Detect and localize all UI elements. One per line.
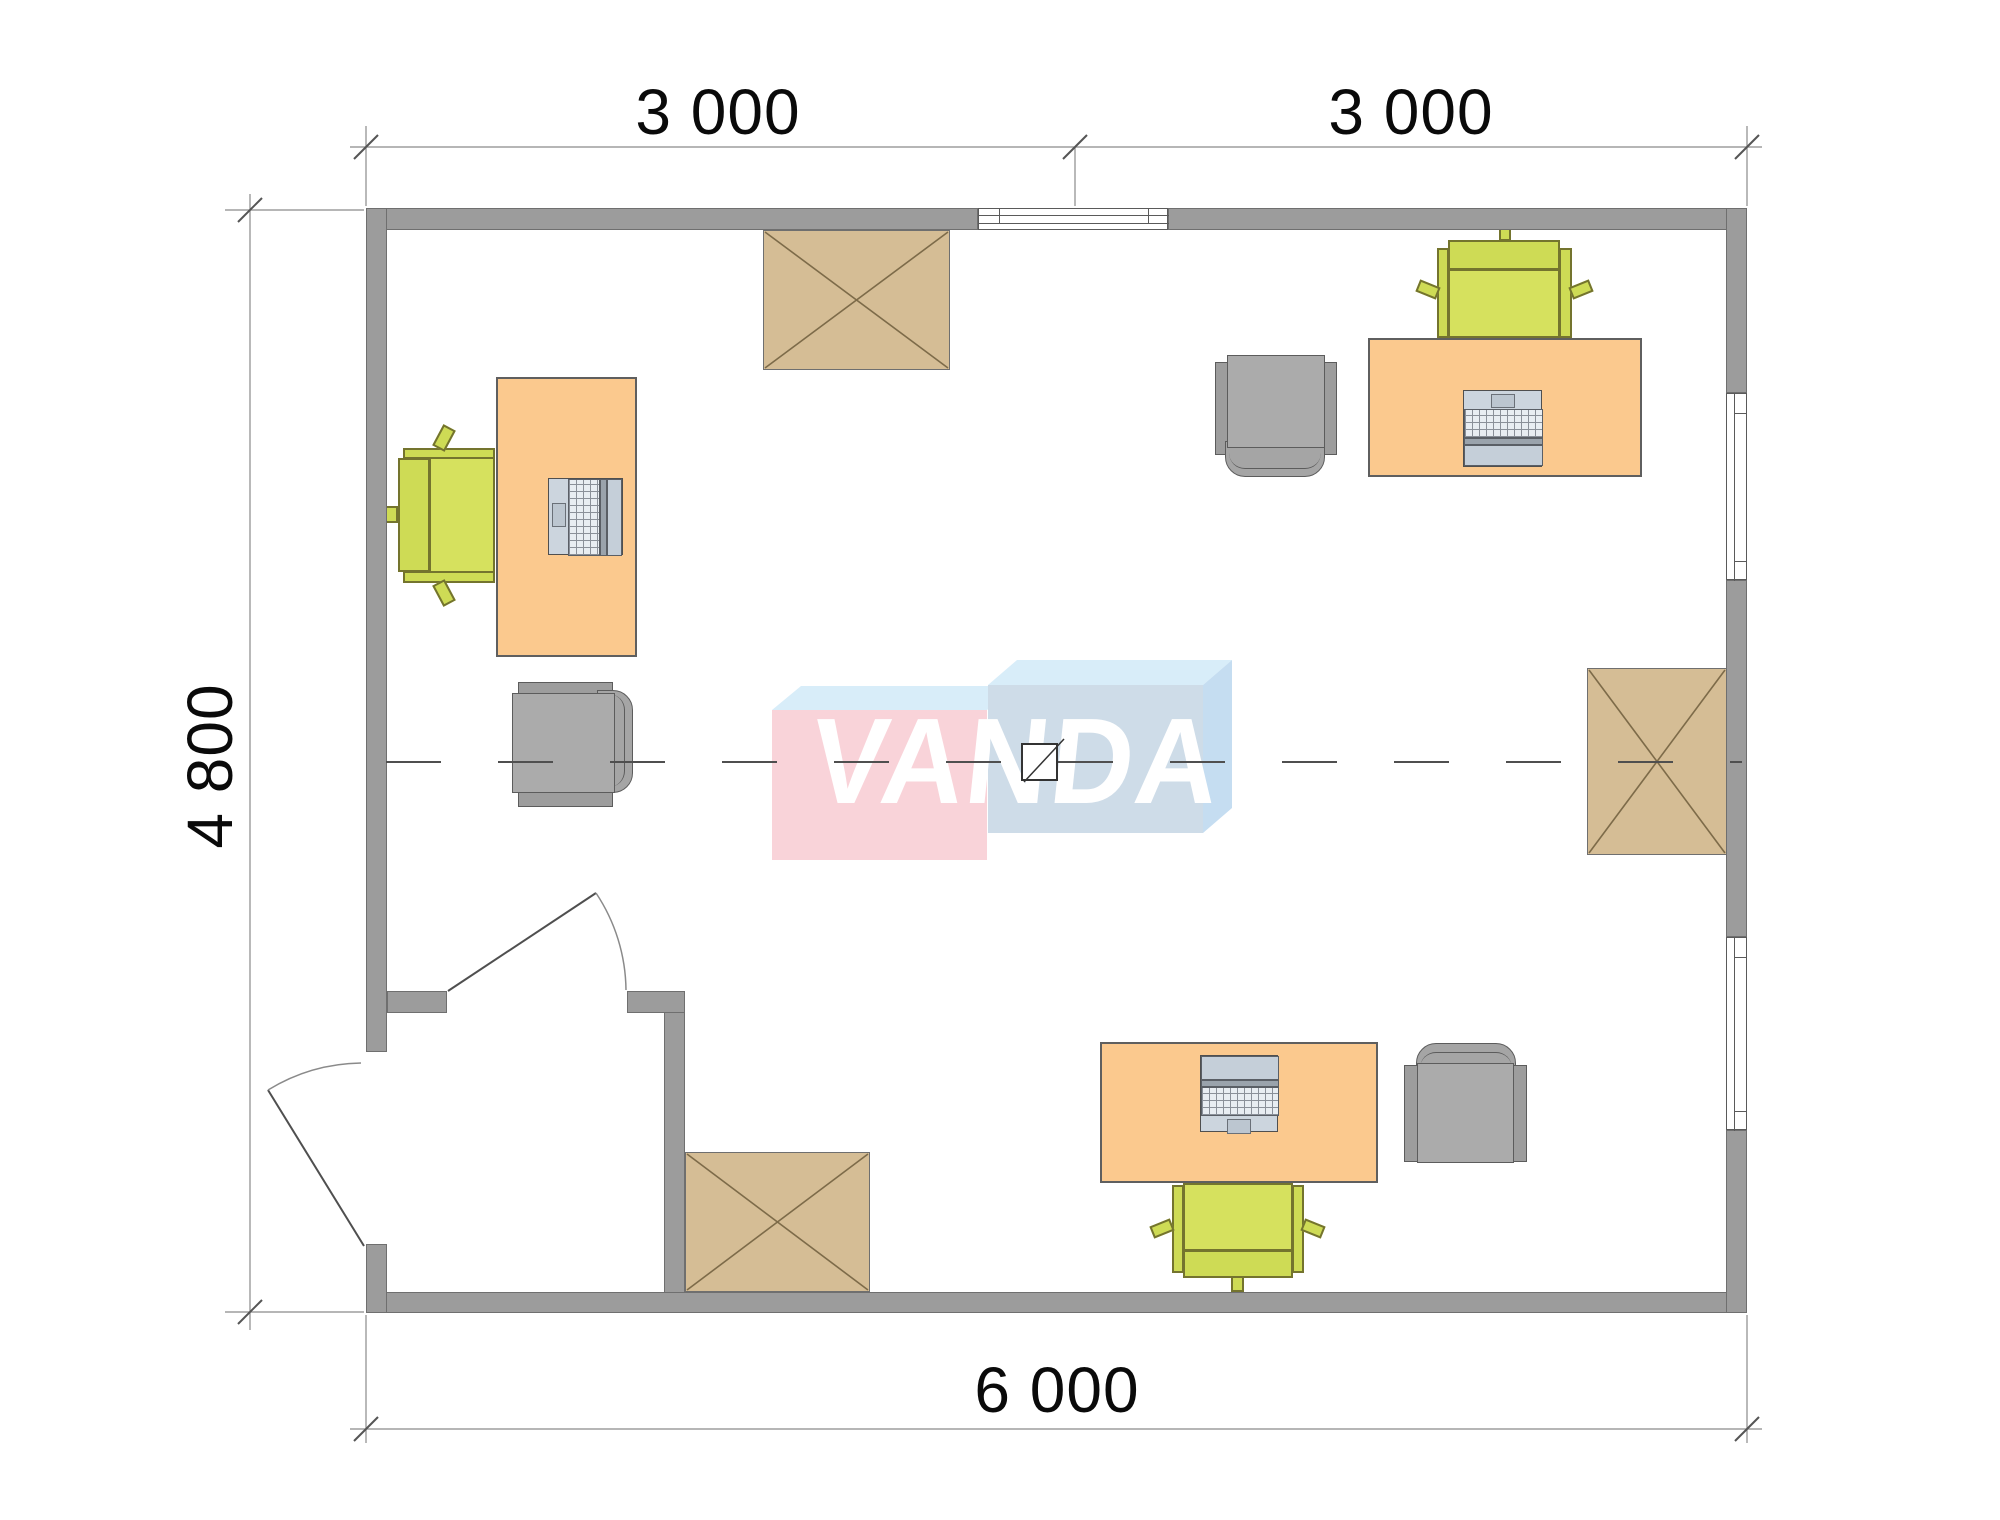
task-chair-2-arm-left: [1437, 248, 1449, 338]
wall-bottom: [366, 1292, 1747, 1313]
task-chair-1-seat: [429, 457, 495, 573]
wall-right-mid-segment: [1726, 580, 1747, 937]
task-chair-1-leg-bottom: [432, 579, 456, 607]
floor-plan-canvas: VANDA: [0, 0, 2000, 1520]
partition-wall-left-stub: [387, 991, 447, 1013]
task-chair-2-seat: [1448, 269, 1560, 338]
task-chair-3-leg-bottom: [1231, 1276, 1244, 1292]
laptop-3: [1200, 1055, 1278, 1132]
armchair-3-seat: [1417, 1063, 1514, 1163]
laptop-1-screen: [607, 479, 622, 556]
laptop-1: [548, 478, 623, 555]
task-chair-2-back: [1448, 240, 1560, 270]
wall-right-top-segment: [1726, 208, 1747, 393]
logo-right-block-top-face: [988, 660, 1232, 685]
task-chair-3-back: [1183, 1250, 1293, 1278]
wall-left-upper-segment: [366, 208, 387, 1052]
task-chair-3-leg-left: [1149, 1218, 1174, 1238]
laptop-3-keyboard: [1201, 1087, 1279, 1116]
armchair-2-arm-right: [1323, 362, 1337, 455]
dimension-bottom: 6 000: [907, 1358, 1207, 1422]
wall-top-right-segment: [1168, 208, 1747, 230]
task-chair-2-leg-right: [1568, 279, 1593, 299]
logo-wordmark: VANDA: [806, 700, 1195, 822]
laptop-3-screen: [1201, 1056, 1279, 1080]
window-right-wall-upper: [1726, 393, 1747, 580]
partition-wall-vertical: [664, 1012, 685, 1293]
laptop-1-palmrest: [549, 479, 568, 554]
dimension-left: 4 800: [178, 591, 242, 941]
wall-left-lower-segment: [366, 1244, 387, 1313]
laptop-3-hinge: [1201, 1080, 1279, 1087]
laptop-1-keyboard: [568, 479, 600, 556]
partition-wall-right-stub: [627, 991, 685, 1013]
task-chair-1-arm-top: [403, 448, 495, 459]
laptop-2-screen: [1464, 445, 1543, 466]
cabinet-bottom-wall: [685, 1152, 870, 1292]
armchair-3-arm-right: [1513, 1065, 1527, 1162]
cabinet-top-wall: [763, 230, 950, 370]
window-top-wall: [978, 208, 1168, 230]
dimension-top-right: 3 000: [1261, 80, 1561, 144]
dimension-top-left: 3 000: [568, 80, 868, 144]
laptop-2-palmrest: [1464, 391, 1541, 409]
armchair-3-arm-left: [1404, 1065, 1418, 1162]
laptop-2: [1463, 390, 1542, 467]
window-right-wall-lower: [1726, 937, 1747, 1130]
wall-right-bottom-segment: [1726, 1130, 1747, 1313]
interior-door: [448, 893, 626, 991]
wall-top-left-segment: [366, 208, 978, 230]
entrance-door: [268, 1063, 364, 1246]
armchair-1-arm-bottom: [518, 792, 613, 807]
laptop-2-keyboard: [1464, 409, 1543, 438]
armchair-1-seat: [512, 693, 615, 793]
laptop-3-palmrest: [1201, 1116, 1277, 1131]
laptop-2-hinge: [1464, 438, 1543, 445]
task-chair-3-leg-right: [1300, 1218, 1325, 1238]
task-chair-1-back: [398, 458, 430, 572]
task-chair-1-arm-bottom: [403, 571, 495, 583]
armchair-2-seat: [1227, 355, 1325, 448]
cabinet-right-wall: [1587, 668, 1727, 855]
laptop-1-hinge: [600, 479, 607, 556]
task-chair-3-seat: [1183, 1183, 1293, 1251]
